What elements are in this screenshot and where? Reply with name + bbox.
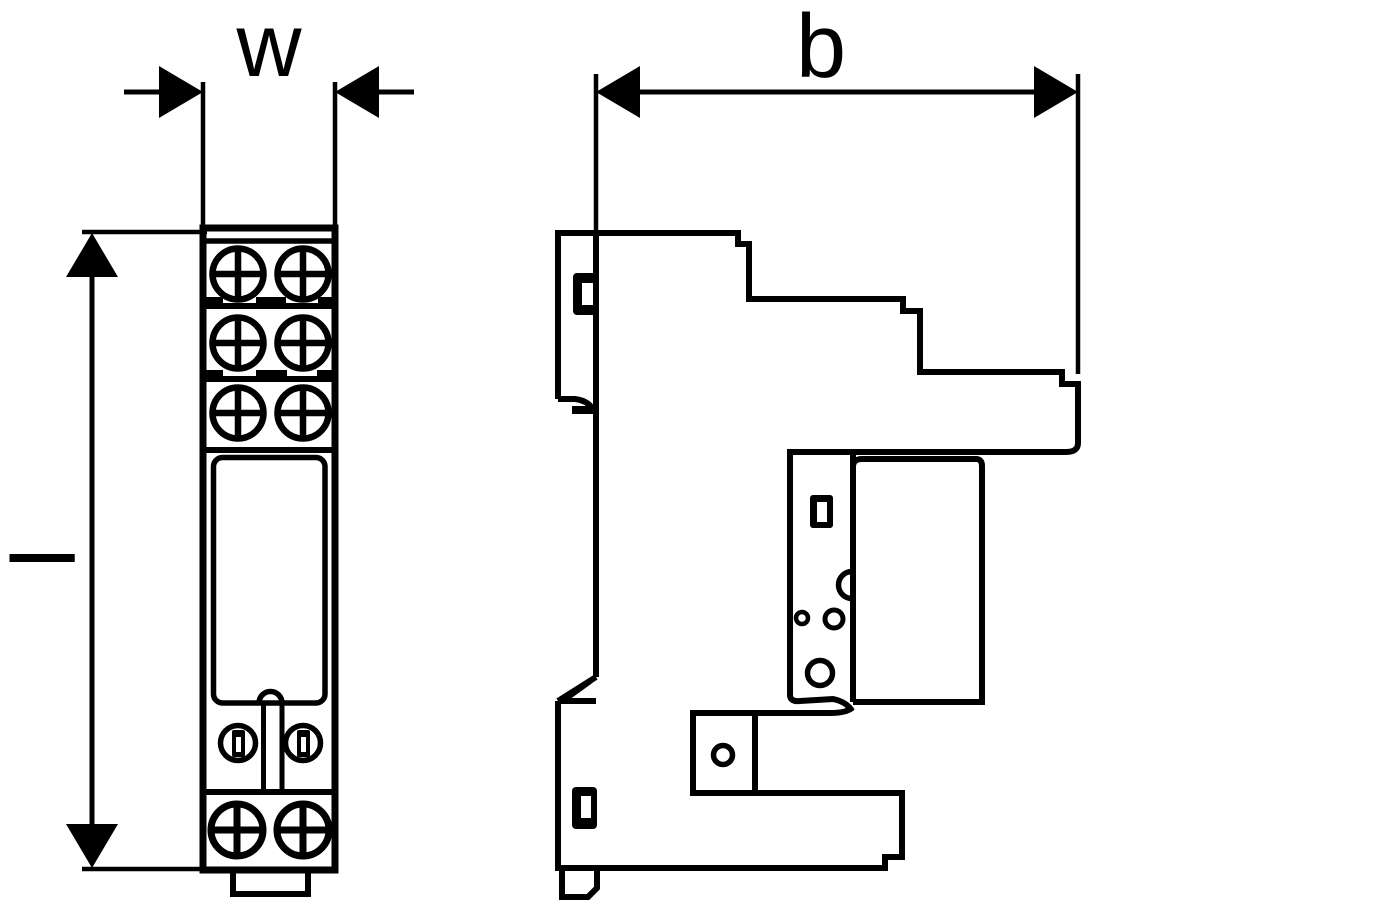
front-view <box>203 228 335 894</box>
din-rail-clip-top <box>558 233 599 677</box>
w-arrowhead-right <box>335 66 379 118</box>
screw-slot-inner <box>301 737 306 752</box>
b-arrowhead-left <box>596 66 640 118</box>
w-label: w <box>236 0 303 96</box>
technical-drawing-svg: w b l <box>0 0 1400 900</box>
dimension-l: l <box>0 232 207 869</box>
b-label: b <box>796 0 846 97</box>
side-mounting-foot <box>562 868 597 897</box>
bracket-hole <box>714 746 733 765</box>
socket-panel <box>796 495 852 686</box>
din-rail-clip-bottom <box>558 677 596 701</box>
technical-drawing-page: w b l <box>0 0 1400 900</box>
terminal-row-1 <box>213 249 329 300</box>
relay-body <box>853 452 982 702</box>
fixing-bracket <box>714 713 756 793</box>
dimension-b: b <box>596 0 1078 374</box>
bottom-terminal-row <box>211 804 329 856</box>
mounting-foot <box>233 870 308 894</box>
marking-area <box>214 458 326 704</box>
side-lower-body <box>558 701 902 868</box>
clip-hook-diagonal-inner <box>566 681 591 699</box>
w-arrowhead-left <box>159 66 203 118</box>
dimension-w: w <box>124 0 414 226</box>
b-arrowhead-right <box>1034 66 1078 118</box>
panel-slot-inner <box>817 502 827 522</box>
l-label: l <box>0 548 95 568</box>
clip-slot-inner <box>582 283 593 305</box>
terminal-row-3 <box>213 388 329 439</box>
panel-hole-small <box>796 612 808 624</box>
relay-outline <box>853 459 982 702</box>
terminal-row-2 <box>213 318 329 369</box>
l-arrowhead-top <box>66 233 118 277</box>
terminal-divider-2 <box>203 370 335 380</box>
l-arrowhead-bottom <box>66 824 118 868</box>
panel-notch-arc <box>839 572 853 599</box>
side-view <box>558 233 1078 897</box>
screw-slot-inner <box>236 737 241 752</box>
middle-screw-section <box>221 705 321 790</box>
side-outline <box>558 233 1078 711</box>
lower-clip-slot-inner <box>581 796 591 818</box>
panel-hole-large <box>808 661 833 686</box>
panel-hole-medium <box>825 610 843 628</box>
